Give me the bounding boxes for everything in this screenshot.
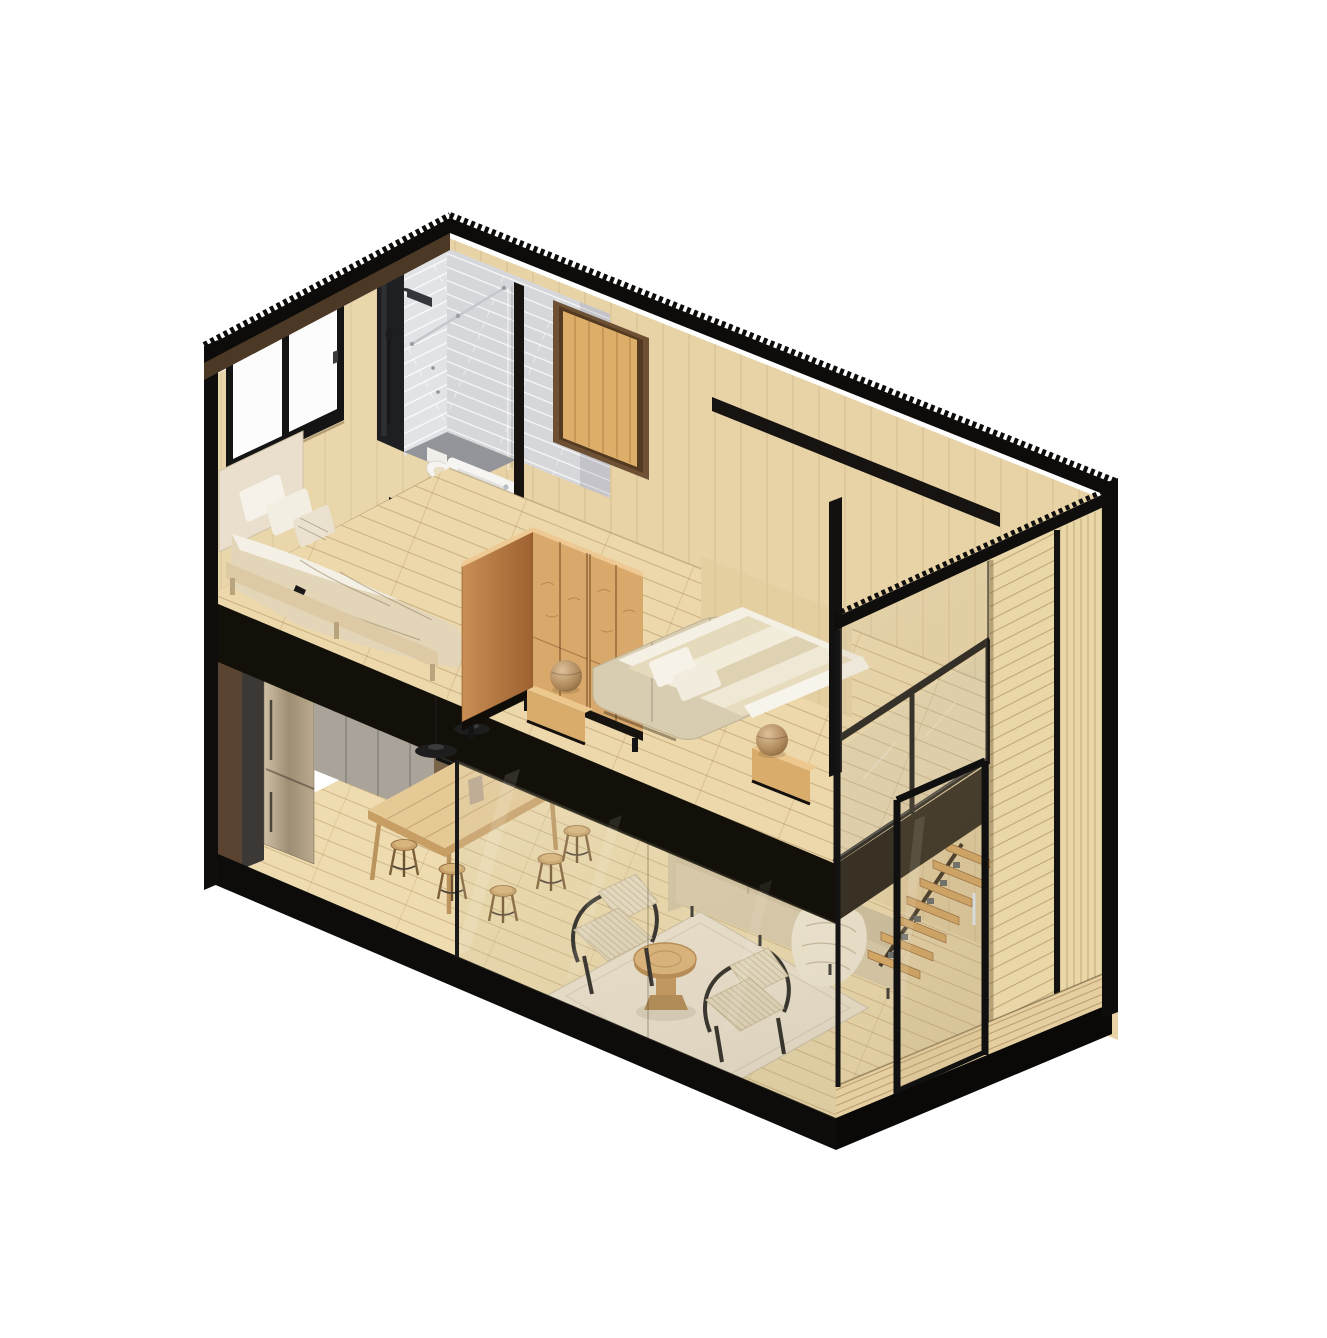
slat-cladding (990, 508, 1104, 1022)
rendering-canvas (0, 0, 1327, 1338)
slat-texture-outer (1055, 508, 1104, 994)
corner-column-right (1102, 478, 1118, 1018)
towel-hook-icon (436, 390, 440, 394)
slat-texture-inner (990, 530, 1055, 1022)
bathroom-door-jamb (514, 282, 524, 516)
bar-clamp-icon (456, 314, 460, 318)
towel-hook-icon (431, 366, 435, 370)
pendant-dome (428, 744, 444, 750)
bar-clamp-icon (502, 286, 506, 290)
ball-pouf (756, 724, 788, 758)
tile-rows-left (404, 248, 447, 456)
tub-faucet-icon (503, 484, 508, 489)
section-cut-wood-strip (218, 642, 242, 876)
ball-pouf (550, 660, 582, 694)
sliding-door (895, 761, 985, 1094)
bar-clamp-icon (410, 342, 414, 346)
corner-column-left (204, 340, 218, 890)
glass-facade-end (838, 561, 988, 1094)
isometric-cutaway (0, 0, 1327, 1338)
window-handle (333, 350, 338, 364)
hand-shower-head (386, 328, 393, 340)
